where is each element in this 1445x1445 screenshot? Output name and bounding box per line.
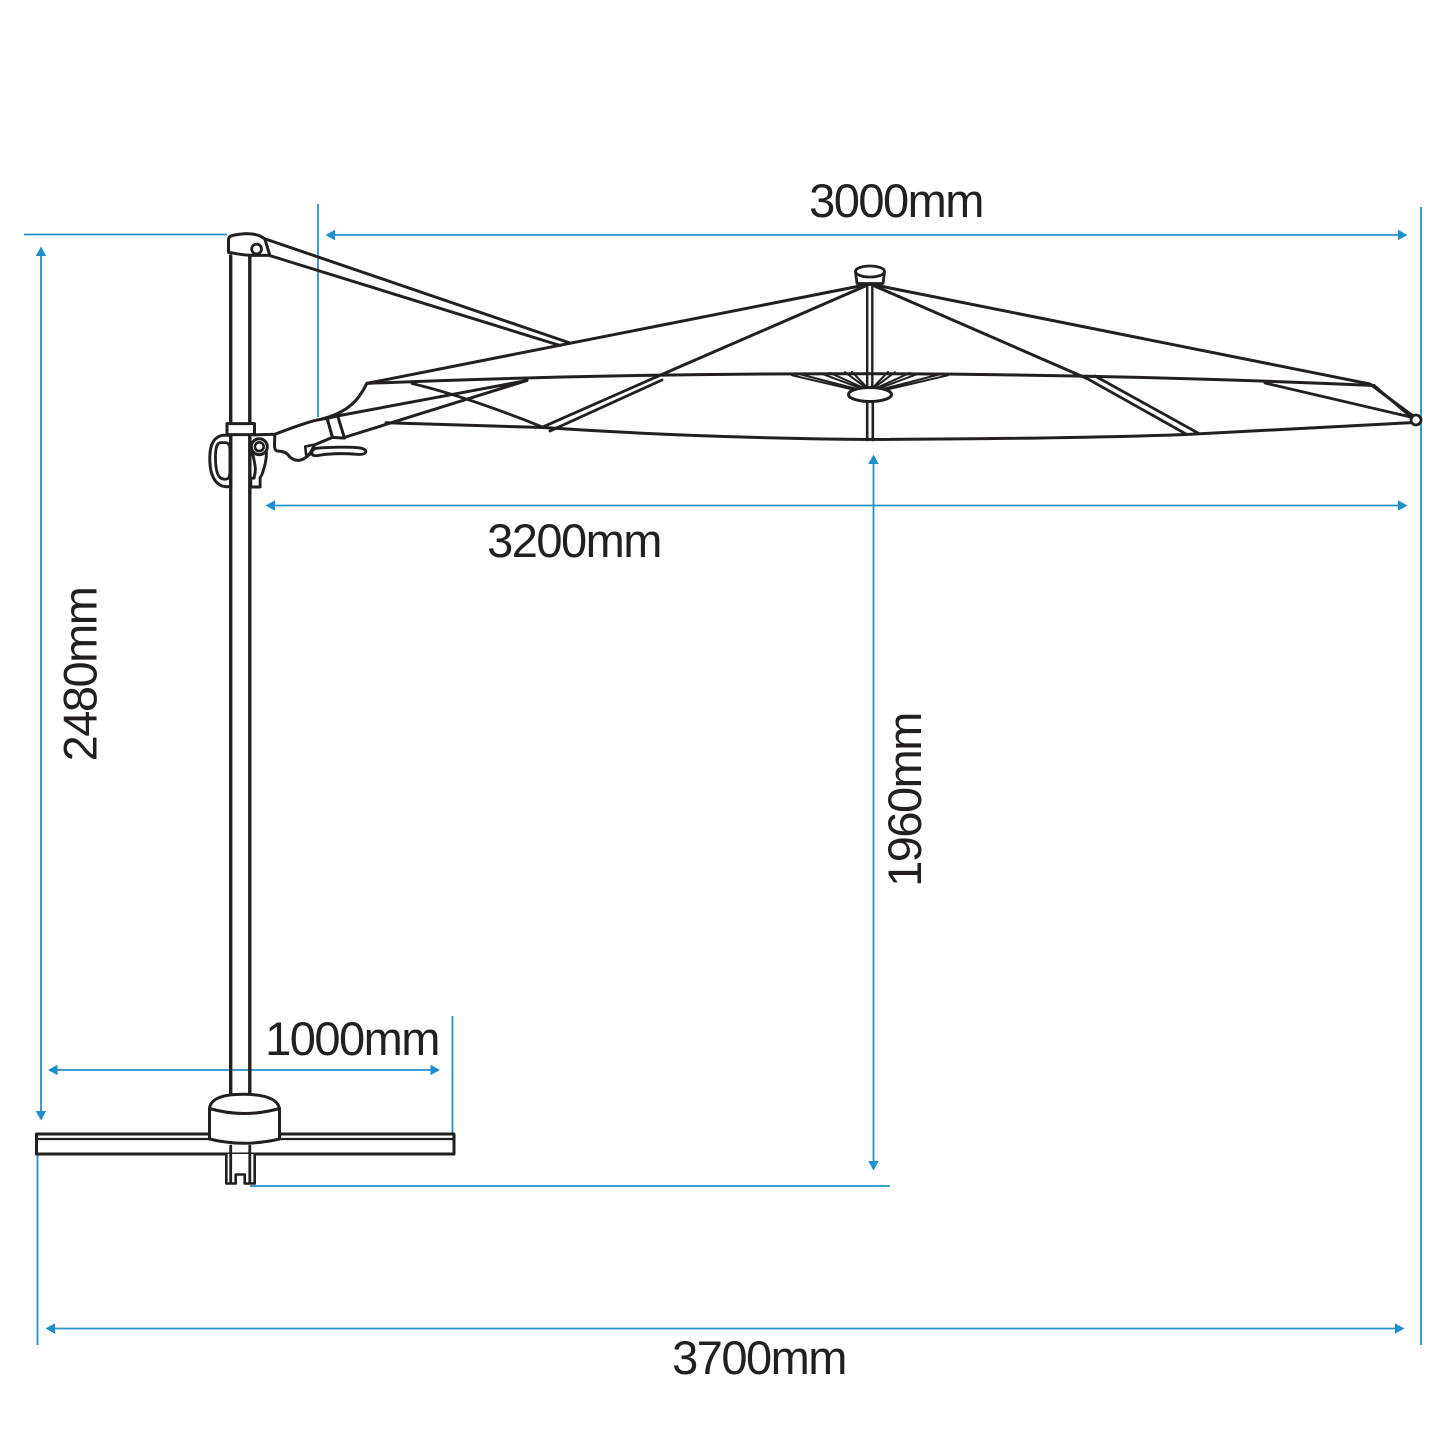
svg-text:1000mm: 1000mm [265, 1012, 439, 1065]
svg-text:1960mm: 1960mm [878, 713, 931, 887]
svg-text:3700mm: 3700mm [672, 1331, 846, 1384]
svg-text:3000mm: 3000mm [809, 174, 983, 227]
svg-text:2480mm: 2480mm [54, 588, 107, 762]
svg-text:3200mm: 3200mm [487, 514, 661, 567]
